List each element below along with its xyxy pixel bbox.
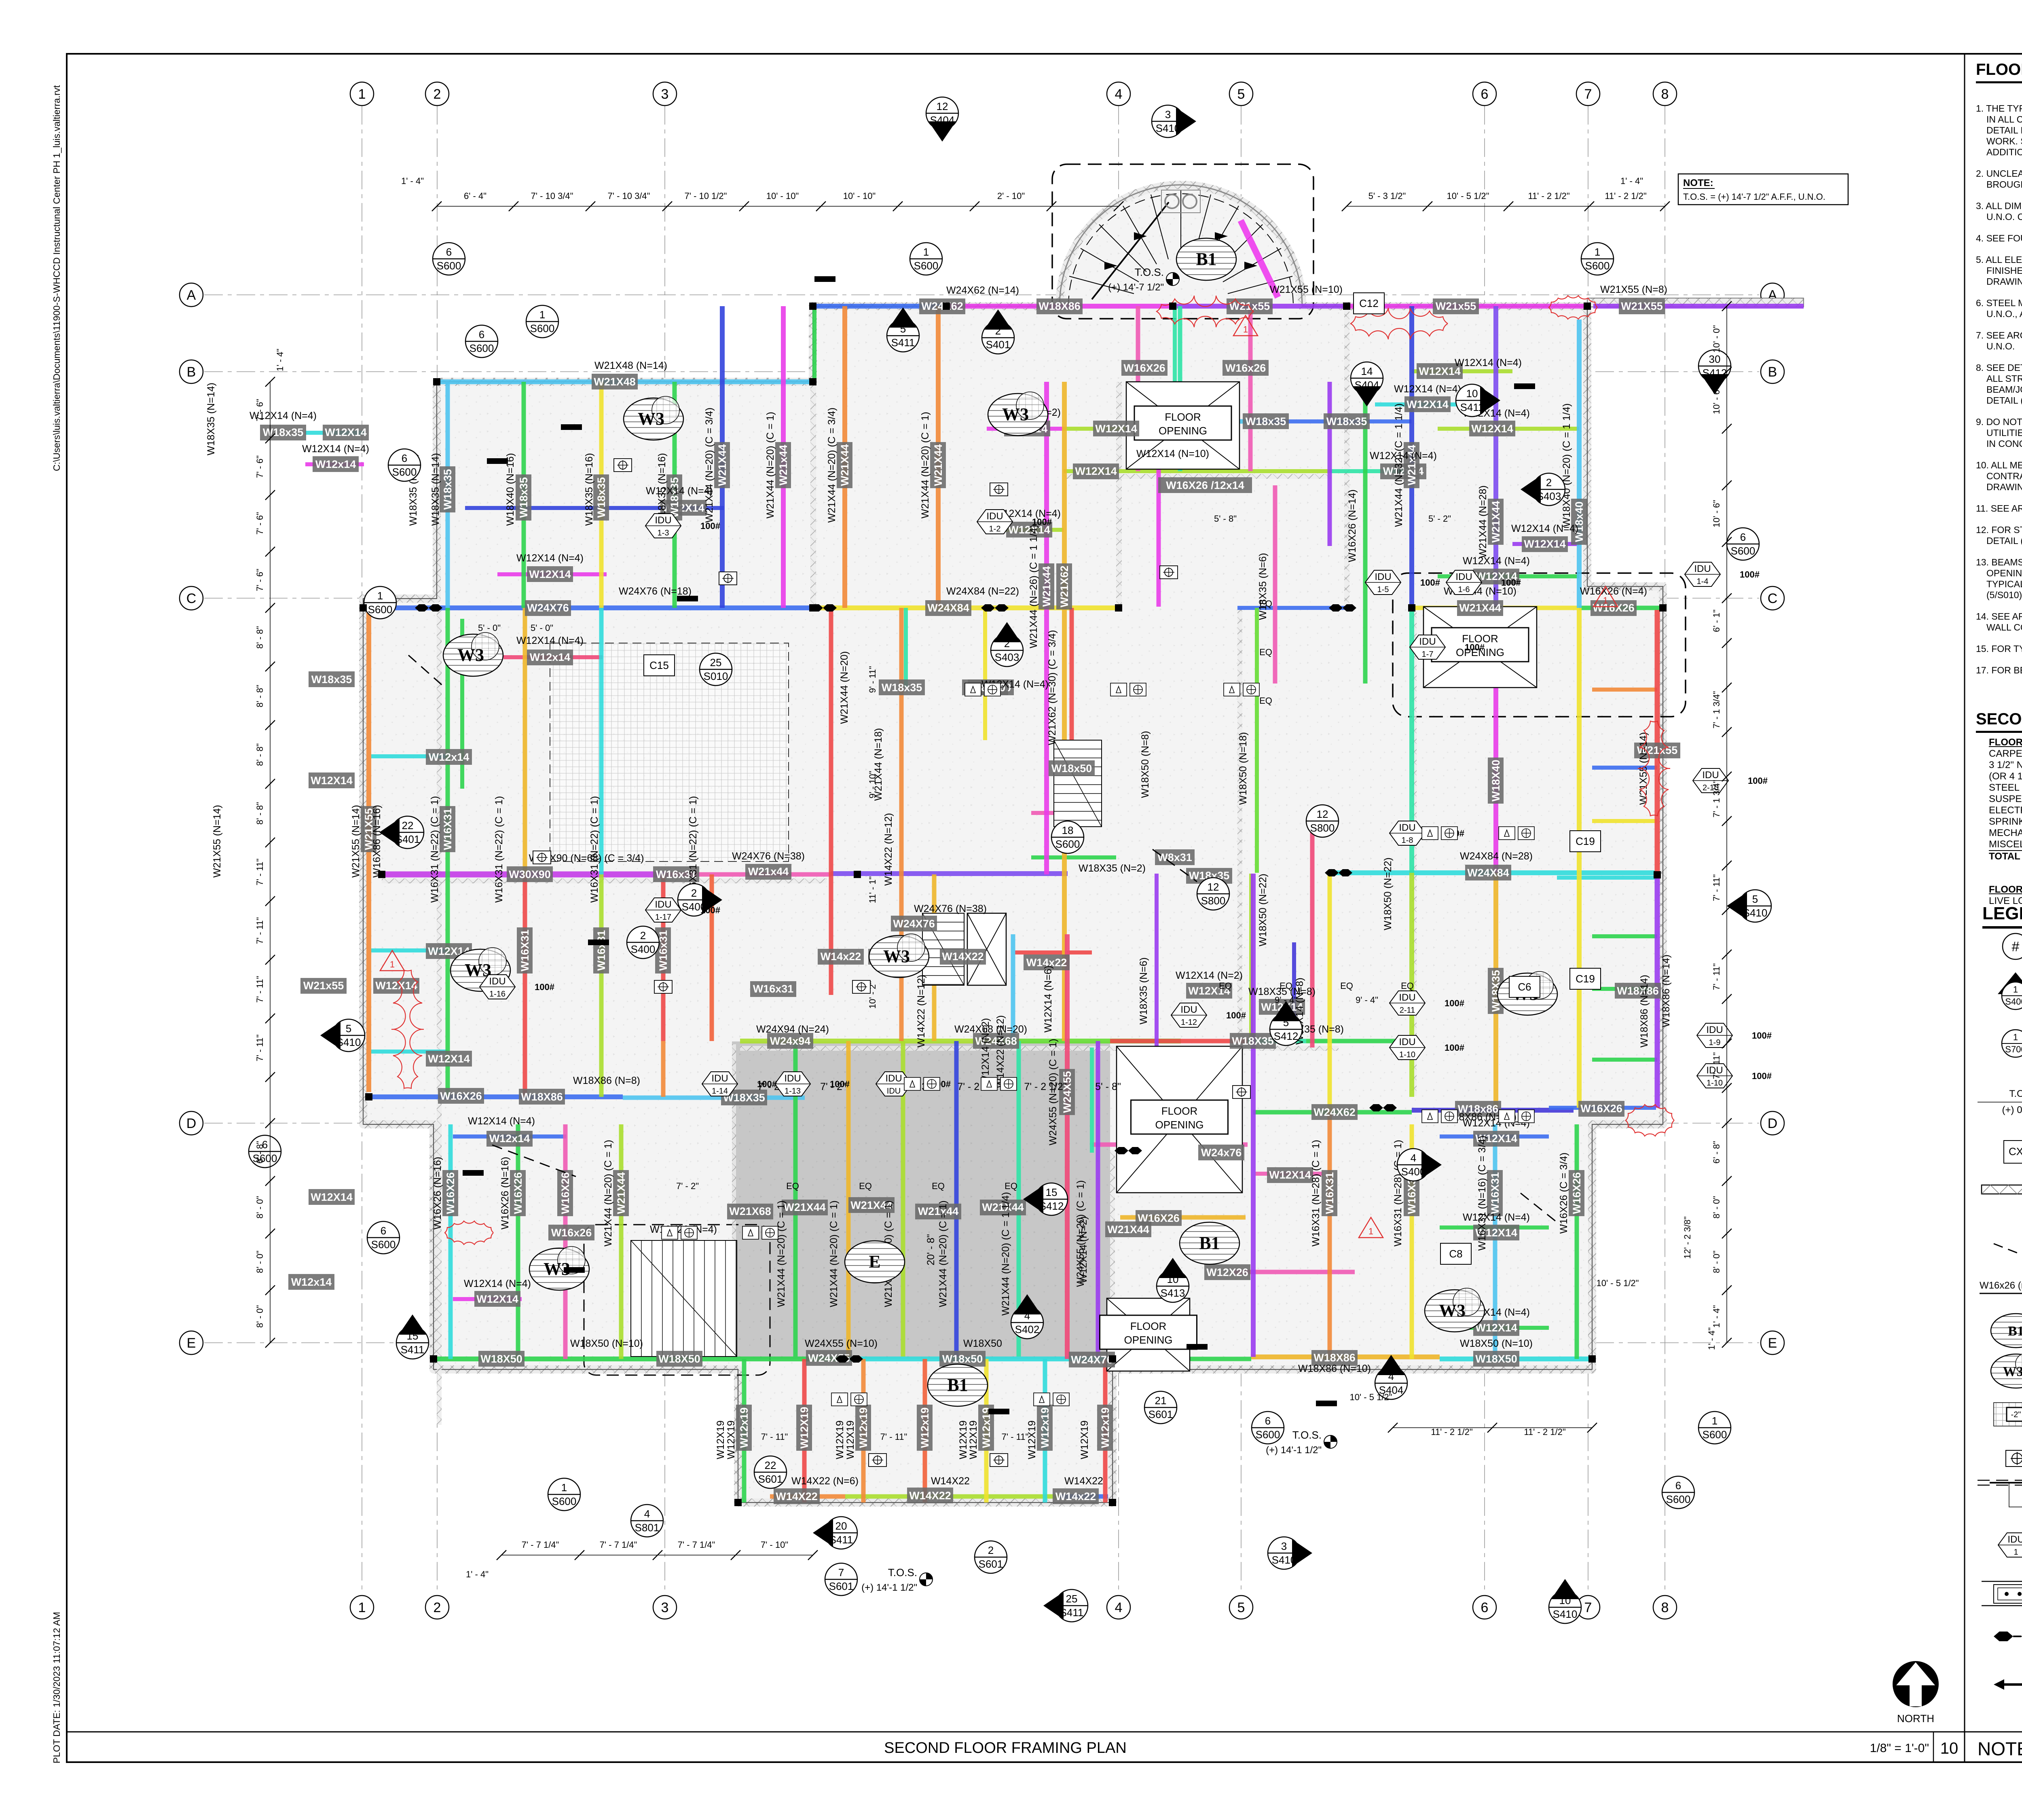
svg-text:#: # [2012, 939, 2020, 954]
svg-text:1: 1 [2013, 984, 2018, 995]
svg-text:CX: CX [2009, 1145, 2022, 1158]
svg-text:-2": -2" [2011, 1410, 2021, 1419]
svg-text:1: 1 [2014, 1548, 2018, 1557]
svg-text:(+) 0'-0": (+) 0'-0" [2002, 1105, 2022, 1115]
svg-text:T.O.S.: T.O.S. [2009, 1088, 2022, 1099]
svg-text:IDU: IDU [2007, 1534, 2022, 1545]
svg-text:W3: W3 [2003, 1364, 2022, 1379]
svg-text:S700: S700 [2005, 1044, 2022, 1054]
svg-text:W16x26 (n=12) (c=1"): W16x26 (n=12) (c=1") [1980, 1280, 2022, 1291]
svg-text:NORTH: NORTH [1897, 1712, 1934, 1725]
svg-text:S400: S400 [2005, 997, 2022, 1007]
svg-text:B1: B1 [2008, 1324, 2022, 1339]
svg-text:1: 1 [2013, 1032, 2018, 1042]
